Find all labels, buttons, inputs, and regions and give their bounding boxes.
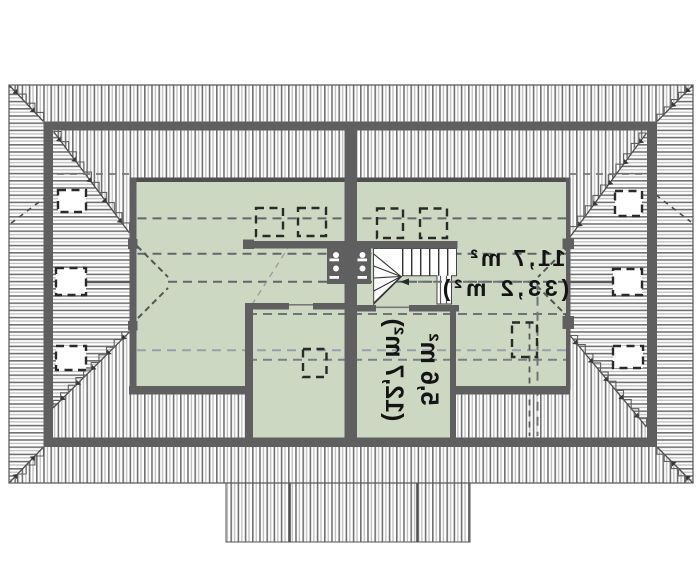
- svg-text:(12,7 m²): (12,7 m²): [380, 319, 408, 422]
- svg-text:11,7 m²: 11,7 m²: [468, 245, 566, 271]
- svg-text:(33,2 m²): (33,2 m²): [439, 275, 570, 301]
- svg-text:5,6 m²: 5,6 m²: [415, 333, 443, 405]
